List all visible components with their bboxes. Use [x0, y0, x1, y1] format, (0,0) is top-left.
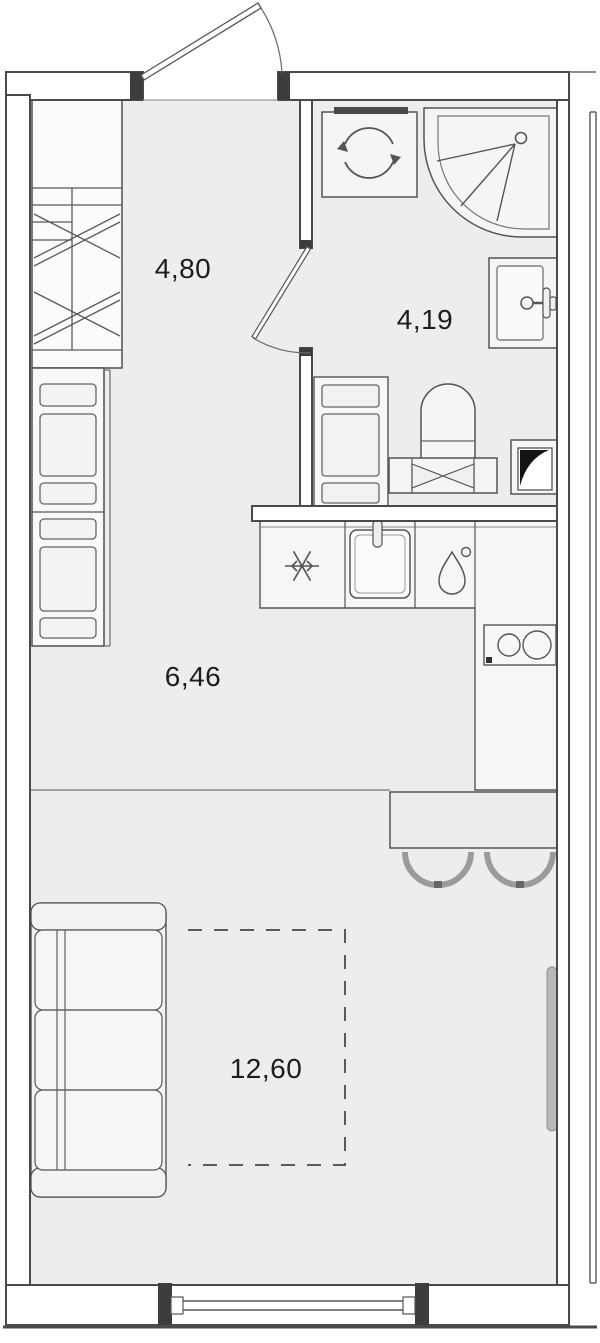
stove	[484, 625, 556, 665]
bathroom-sink	[489, 258, 557, 348]
bathroom-area-label: 4,19	[397, 304, 454, 335]
hallway-cabinets	[32, 368, 110, 646]
sofa-armrest	[31, 1168, 166, 1197]
washing-machine	[322, 107, 417, 197]
wall-bathroom-south	[252, 506, 557, 521]
kitchen-faucet-icon	[373, 520, 382, 547]
kitchen-sink	[350, 520, 410, 598]
wall-right	[557, 100, 569, 1285]
sofa-cushions	[35, 930, 162, 1170]
sofa-armrest	[31, 903, 166, 930]
kitchen-area-label: 6,46	[165, 661, 222, 692]
wall-left	[6, 95, 30, 1285]
wall-bathroom-west-upper	[300, 100, 312, 248]
bar-counter	[390, 792, 557, 848]
vent-shaft	[511, 440, 557, 494]
floor-plan-page: 4,80 4,19 6,46 12,60	[0, 0, 600, 1343]
wall-bathroom-west-lower	[300, 348, 312, 506]
sofa	[31, 903, 166, 1197]
wardrobe	[32, 100, 122, 368]
floor-plan-svg: 4,80 4,19 6,46 12,60	[0, 0, 600, 1343]
faucet-knob-icon	[521, 297, 533, 309]
hallway-area-label: 4,80	[155, 253, 212, 284]
wall-bottom	[6, 1285, 569, 1325]
wall-top-right	[278, 72, 569, 100]
washing-machine-panel	[334, 107, 408, 114]
bathroom-cabinet	[314, 377, 388, 510]
living-room-area-label: 12,60	[230, 1053, 303, 1084]
